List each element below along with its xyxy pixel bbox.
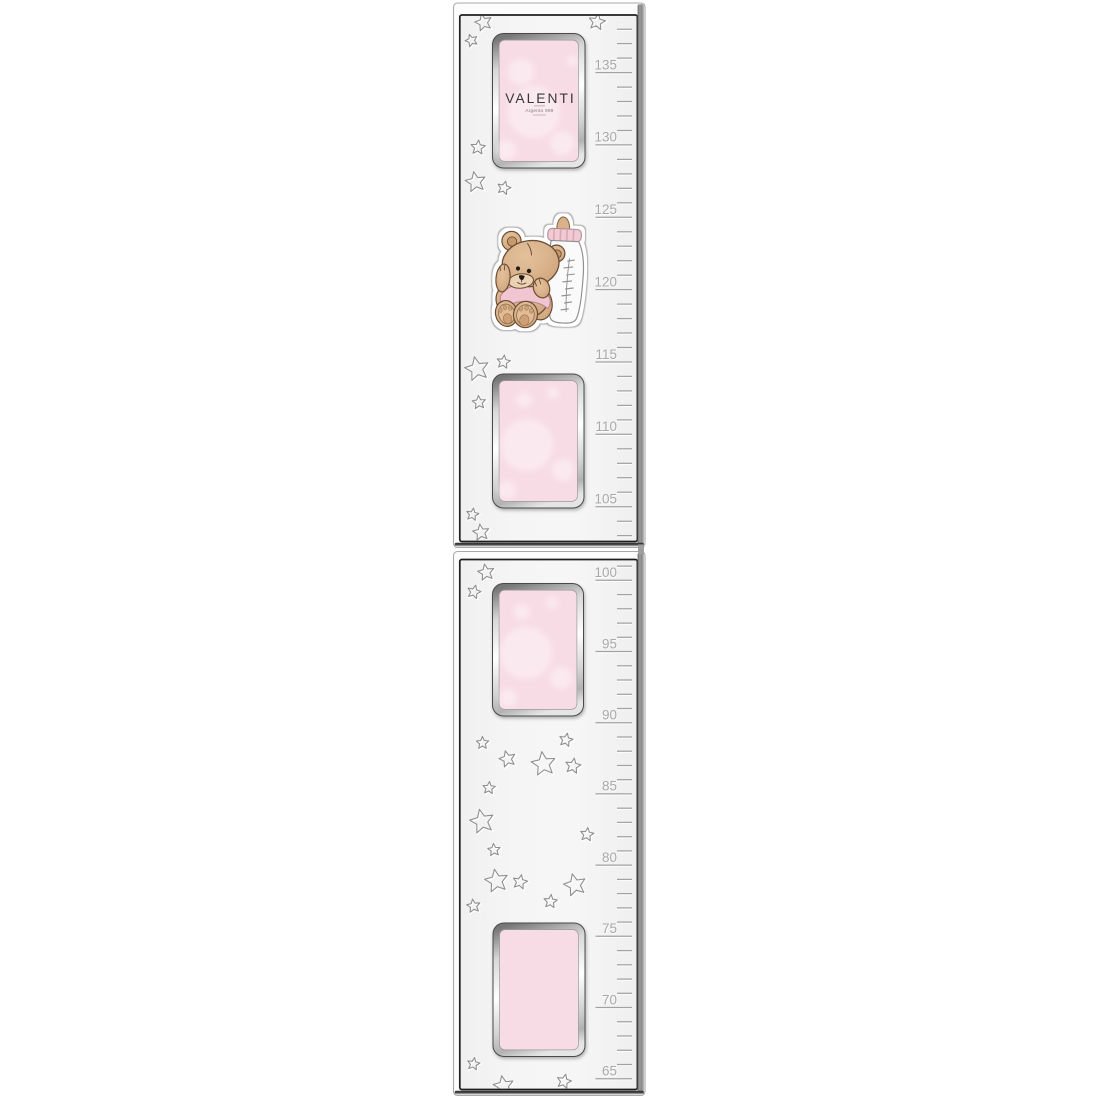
svg-text:VALENTI: VALENTI bbox=[505, 91, 575, 106]
svg-text:80: 80 bbox=[602, 850, 617, 865]
svg-text:90: 90 bbox=[602, 708, 617, 723]
svg-text:135: 135 bbox=[594, 57, 617, 72]
svg-text:130: 130 bbox=[594, 130, 617, 145]
svg-text:95: 95 bbox=[602, 636, 617, 651]
svg-text:115: 115 bbox=[595, 347, 617, 362]
svg-text:65: 65 bbox=[602, 1064, 617, 1079]
svg-text:75: 75 bbox=[602, 921, 617, 936]
svg-text:105: 105 bbox=[594, 492, 617, 507]
svg-text:Argento 999: Argento 999 bbox=[525, 108, 553, 113]
svg-text:85: 85 bbox=[602, 779, 617, 794]
svg-text:100: 100 bbox=[594, 565, 617, 580]
svg-text:70: 70 bbox=[602, 992, 617, 1007]
svg-text:110: 110 bbox=[595, 419, 617, 434]
svg-text:120: 120 bbox=[594, 274, 617, 289]
svg-text:125: 125 bbox=[594, 202, 617, 217]
